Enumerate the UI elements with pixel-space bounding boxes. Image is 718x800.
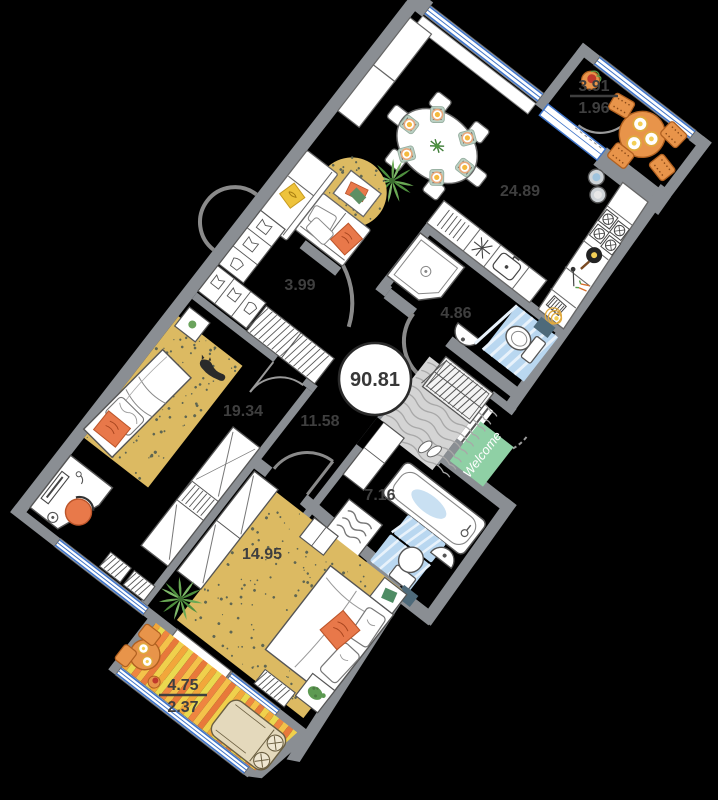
svg-text:3.99: 3.99 bbox=[284, 277, 315, 294]
svg-text:11.58: 11.58 bbox=[300, 413, 339, 430]
svg-text:90.81: 90.81 bbox=[350, 369, 400, 391]
svg-text:4.75: 4.75 bbox=[167, 677, 198, 694]
svg-text:7.16: 7.16 bbox=[364, 487, 395, 504]
svg-text:24.89: 24.89 bbox=[500, 183, 540, 200]
svg-text:1.96: 1.96 bbox=[578, 100, 609, 117]
svg-text:14.95: 14.95 bbox=[242, 546, 282, 563]
svg-text:3.91: 3.91 bbox=[578, 78, 609, 95]
svg-text:4.86: 4.86 bbox=[440, 305, 471, 322]
svg-text:2.37: 2.37 bbox=[167, 699, 198, 716]
svg-text:19.34: 19.34 bbox=[223, 403, 263, 420]
